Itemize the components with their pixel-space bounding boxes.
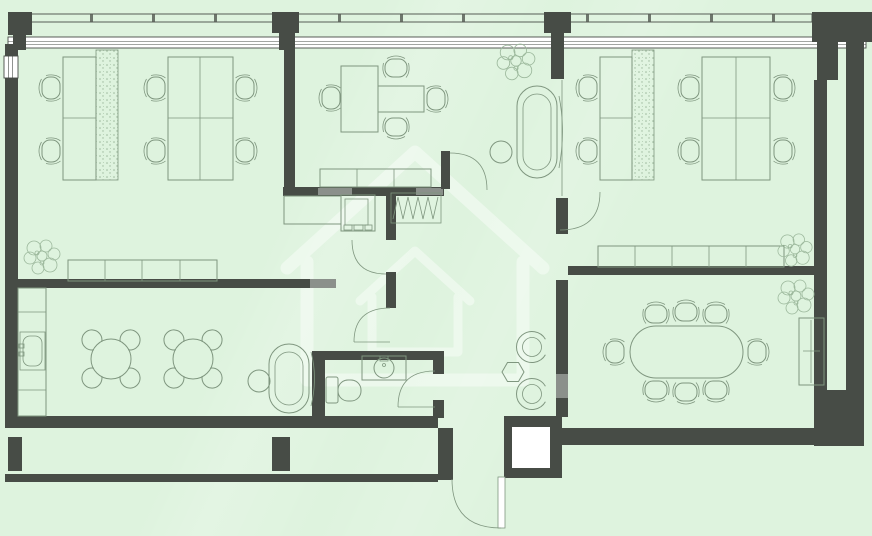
plant-icon: [497, 44, 535, 80]
room-break: [18, 288, 315, 416]
interior-walls: [16, 33, 814, 418]
round-side-table: [490, 141, 512, 163]
column: [8, 12, 32, 35]
balcony-stub: [8, 437, 22, 471]
desk-extension: [378, 86, 424, 112]
office-chair-icon: [39, 138, 61, 164]
executive-desk: [341, 66, 378, 132]
office-chair-icon: [576, 138, 598, 164]
east-inner-wall: [814, 80, 827, 390]
column-stub: [551, 33, 564, 79]
door-header: [310, 279, 336, 288]
storage-cabinets: [598, 246, 784, 267]
office-chair-icon: [576, 75, 598, 101]
copy-room-wall: [386, 272, 396, 308]
sofa: [517, 86, 563, 178]
north-balcony-rail: [30, 14, 812, 22]
zigzag-shelf: [391, 193, 441, 223]
south-wall-left: [5, 416, 438, 428]
round-chair-icon: [117, 326, 144, 353]
entrance-pier-void: [512, 427, 550, 468]
office-chair-icon: [643, 381, 669, 403]
office-chair-icon: [703, 381, 729, 403]
room-wc-2: [502, 332, 545, 410]
round-chair-icon: [199, 365, 226, 392]
house-logo-watermark: [287, 152, 543, 380]
entrance-door-leaf: [498, 477, 505, 528]
room-copy-area: [284, 193, 441, 231]
manager-west-wall: [284, 33, 295, 196]
office-chair-icon: [643, 302, 669, 324]
north-window-band: [8, 37, 866, 48]
plant-icon: [24, 240, 60, 274]
office-chair-icon: [383, 56, 409, 78]
east-outer-wall: [846, 30, 864, 392]
column: [544, 12, 571, 33]
column-stub: [817, 42, 838, 80]
kitchen-counter: [18, 288, 46, 416]
kitchen-sink: [20, 332, 45, 370]
office-chair-icon: [748, 339, 770, 365]
office-chair-icon: [703, 302, 729, 324]
office-chair-icon: [673, 300, 699, 322]
office-chair-icon: [603, 339, 625, 365]
west-wall: [5, 78, 18, 416]
desk-cluster: [168, 57, 233, 180]
entrance-door-swing: [452, 479, 501, 528]
wc-east-wall: [433, 400, 444, 418]
floor-plan-canvas: [0, 0, 872, 536]
balcony-stub: [272, 437, 290, 471]
west-wall: [5, 44, 18, 56]
plant-icon: [778, 280, 814, 314]
storage-cabinets: [68, 260, 217, 281]
office-chair-icon: [774, 138, 796, 164]
desk-planter-strip: [632, 50, 654, 180]
round-fixture-icon: [517, 379, 546, 410]
south-wall-right: [556, 428, 864, 445]
wc-east-wall: [433, 351, 444, 374]
door-swing-copy: [352, 240, 386, 274]
office-chair-icon: [678, 138, 700, 164]
office-chair-icon: [236, 138, 258, 164]
rail-ticks: [90, 15, 775, 22]
round-table: [91, 339, 131, 379]
entrance-jamb: [438, 428, 453, 480]
desk-cluster: [63, 50, 118, 180]
manager-door-leaf: [441, 151, 450, 189]
round-chair-icon: [78, 326, 105, 353]
office-right-west-wall: [556, 198, 568, 234]
office-chair-icon: [236, 75, 258, 101]
door-header: [556, 374, 568, 398]
round-chair-icon: [117, 365, 144, 392]
round-chair-icon: [160, 365, 187, 392]
room-open-office-left: [24, 50, 257, 281]
desk-cluster: [702, 57, 770, 180]
conference-table: [630, 326, 743, 378]
office-chair-icon: [144, 138, 166, 164]
column: [272, 12, 299, 33]
round-side-table: [248, 370, 270, 392]
wc-west-wall: [312, 351, 325, 417]
room-open-office-right: [576, 50, 812, 267]
room-conference: [603, 280, 824, 404]
office-chair-icon: [383, 118, 409, 140]
round-chair-icon: [78, 365, 105, 392]
desk-cluster: [600, 50, 654, 180]
round-chair-icon: [199, 326, 226, 353]
round-chair-icon: [160, 326, 187, 353]
office-chair-icon: [673, 383, 699, 405]
entrance-door: [452, 477, 505, 528]
plant-icon: [778, 234, 812, 266]
door-header: [318, 188, 352, 195]
south-balcony-edge: [5, 474, 438, 482]
office-chair-icon: [774, 75, 796, 101]
office-chair-icon: [144, 75, 166, 101]
round-table: [173, 339, 213, 379]
room-wc-1: [326, 356, 406, 403]
west-window: [4, 56, 18, 78]
breakroom-north-wall: [16, 279, 336, 288]
office-chair-icon: [678, 75, 700, 101]
office-chair-icon: [319, 85, 341, 111]
office-chair-icon: [39, 75, 61, 101]
office-chair-icon: [427, 86, 449, 112]
floor-plan-svg: [0, 0, 872, 536]
door-header: [416, 188, 443, 195]
desk-planter-strip: [96, 50, 118, 180]
